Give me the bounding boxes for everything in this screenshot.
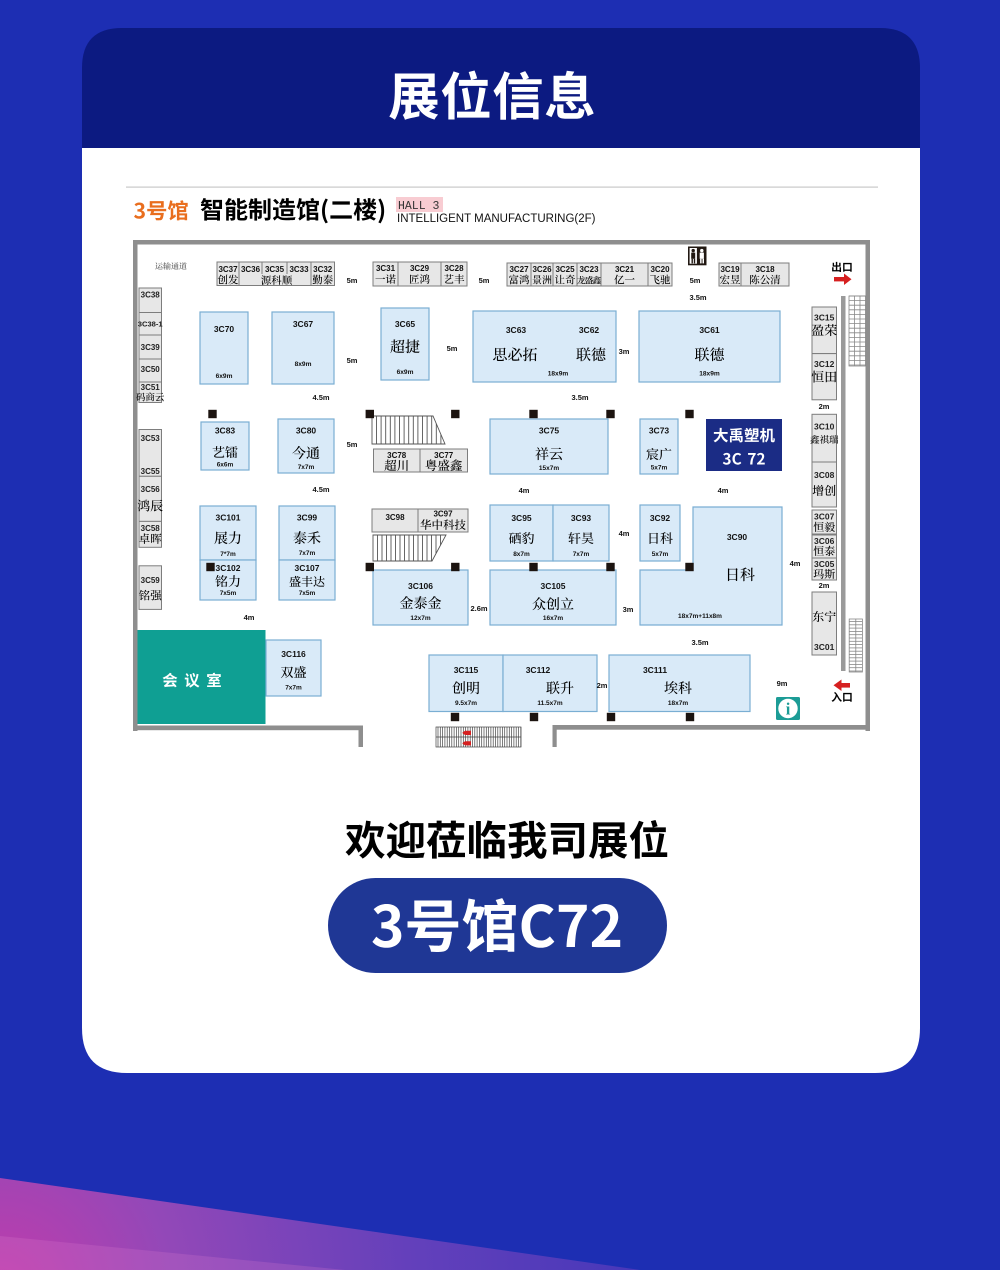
svg-text:3C05: 3C05 (814, 559, 835, 569)
svg-text:5m: 5m (347, 356, 358, 365)
svg-text:3C98: 3C98 (385, 513, 405, 522)
svg-text:3C65: 3C65 (395, 319, 416, 329)
svg-text:3C38: 3C38 (141, 291, 161, 300)
svg-text:3m: 3m (623, 605, 634, 614)
svg-text:4m: 4m (718, 486, 729, 495)
svg-text:3C78: 3C78 (387, 451, 407, 460)
svg-text:6x9m: 6x9m (397, 369, 414, 376)
svg-text:2m: 2m (597, 681, 608, 690)
svg-text:4m: 4m (790, 559, 801, 568)
svg-text:12x7m: 12x7m (410, 615, 430, 622)
svg-text:3C10: 3C10 (814, 422, 835, 432)
svg-text:3C93: 3C93 (571, 513, 592, 523)
svg-text:3C38-1: 3C38-1 (138, 320, 164, 329)
svg-text:4.5m: 4.5m (312, 393, 329, 402)
svg-text:3C28: 3C28 (444, 264, 464, 273)
svg-text:3C56: 3C56 (141, 485, 161, 494)
svg-text:15x7m: 15x7m (539, 465, 559, 472)
svg-text:3C35: 3C35 (265, 265, 285, 274)
svg-text:4m: 4m (244, 613, 255, 622)
svg-text:3m: 3m (619, 347, 630, 356)
svg-text:HALL 3: HALL 3 (398, 200, 440, 213)
svg-text:5m: 5m (690, 276, 701, 285)
svg-text:3C23: 3C23 (579, 265, 599, 274)
svg-text:11.5x7m: 11.5x7m (537, 700, 563, 707)
svg-text:5m: 5m (347, 440, 358, 449)
svg-text:3C107: 3C107 (294, 563, 319, 573)
svg-text:7x7m: 7x7m (573, 551, 590, 558)
svg-text:3C101: 3C101 (215, 513, 240, 523)
svg-text:3C111: 3C111 (643, 665, 667, 675)
svg-text:INTELLIGENT MANUFACTURING(2F): INTELLIGENT MANUFACTURING(2F) (397, 213, 596, 225)
svg-text:3C15: 3C15 (814, 313, 835, 323)
svg-text:3C92: 3C92 (650, 513, 671, 523)
svg-text:5x7m: 5x7m (651, 465, 668, 472)
svg-text:16x7m: 16x7m (543, 615, 563, 622)
svg-text:5m: 5m (447, 344, 458, 353)
svg-text:7x7m: 7x7m (299, 550, 316, 557)
svg-text:3C31: 3C31 (376, 264, 396, 273)
svg-text:3C18: 3C18 (755, 265, 775, 274)
svg-text:3C21: 3C21 (615, 265, 635, 274)
svg-text:3C63: 3C63 (506, 325, 527, 335)
svg-text:6x6m: 6x6m (217, 462, 234, 469)
svg-text:3C29: 3C29 (410, 264, 430, 273)
svg-text:2m: 2m (819, 402, 830, 411)
svg-text:3C51: 3C51 (141, 383, 161, 392)
svg-text:3C95: 3C95 (511, 513, 532, 523)
svg-text:3C50: 3C50 (141, 365, 161, 374)
svg-text:3C90: 3C90 (727, 532, 748, 542)
svg-text:6x9m: 6x9m (216, 373, 233, 380)
svg-text:3C105: 3C105 (540, 581, 565, 591)
svg-text:3C97: 3C97 (433, 510, 453, 519)
svg-text:3C08: 3C08 (814, 470, 835, 480)
svg-text:3C77: 3C77 (434, 451, 454, 460)
svg-text:7*7m: 7*7m (220, 551, 236, 558)
svg-text:3C26: 3C26 (532, 265, 552, 274)
svg-text:3C58: 3C58 (141, 524, 161, 533)
svg-text:3C73: 3C73 (649, 426, 670, 436)
svg-text:3C115: 3C115 (454, 665, 479, 675)
svg-text:3C20: 3C20 (650, 265, 670, 274)
svg-text:7x5m: 7x5m (299, 590, 316, 597)
svg-text:2m: 2m (819, 581, 830, 590)
svg-text:3C39: 3C39 (141, 343, 161, 352)
svg-text:3.5m: 3.5m (571, 393, 588, 402)
svg-text:8x7m: 8x7m (513, 551, 530, 558)
svg-text:3C53: 3C53 (141, 434, 161, 443)
svg-text:3C12: 3C12 (814, 359, 835, 369)
svg-text:18x9m: 18x9m (699, 371, 720, 378)
svg-text:2.6m: 2.6m (470, 604, 487, 613)
svg-text:3C70: 3C70 (214, 324, 235, 334)
svg-text:3C116: 3C116 (281, 649, 306, 659)
svg-text:8x9m: 8x9m (295, 361, 312, 368)
svg-text:3C32: 3C32 (313, 265, 333, 274)
svg-text:3C19: 3C19 (720, 265, 740, 274)
svg-text:3C83: 3C83 (215, 426, 236, 436)
svg-text:9.5x7m: 9.5x7m (455, 700, 477, 707)
svg-text:7x7m: 7x7m (298, 464, 315, 471)
svg-text:3C61: 3C61 (699, 325, 720, 335)
svg-text:4m: 4m (619, 529, 630, 538)
svg-text:18x9m: 18x9m (548, 371, 569, 378)
svg-text:5m: 5m (347, 276, 358, 285)
svg-text:7x7m: 7x7m (285, 685, 302, 692)
svg-text:3C27: 3C27 (509, 265, 529, 274)
svg-text:9m: 9m (777, 679, 788, 688)
svg-text:3C106: 3C106 (408, 581, 433, 591)
svg-text:3C06: 3C06 (814, 536, 835, 546)
svg-text:3.5m: 3.5m (689, 293, 706, 302)
svg-text:7x5m: 7x5m (220, 590, 237, 597)
svg-text:3C59: 3C59 (141, 576, 161, 585)
svg-text:18x7m: 18x7m (668, 700, 688, 707)
svg-text:3C62: 3C62 (579, 325, 600, 335)
svg-text:18x7m+11x8m: 18x7m+11x8m (678, 613, 722, 620)
svg-text:3C75: 3C75 (539, 426, 560, 436)
svg-text:3C99: 3C99 (297, 513, 318, 523)
svg-text:4m: 4m (519, 486, 530, 495)
svg-text:3C112: 3C112 (526, 665, 551, 675)
svg-text:3C67: 3C67 (293, 319, 314, 329)
svg-text:3C37: 3C37 (218, 265, 238, 274)
svg-text:i: i (786, 700, 791, 719)
svg-text:4.5m: 4.5m (312, 485, 329, 494)
svg-text:3C36: 3C36 (241, 265, 261, 274)
svg-text:3C25: 3C25 (555, 265, 575, 274)
svg-text:3.5m: 3.5m (691, 638, 708, 647)
svg-text:3C80: 3C80 (296, 426, 317, 436)
svg-text:3C01: 3C01 (814, 642, 835, 652)
svg-text:5x7m: 5x7m (652, 551, 669, 558)
svg-text:3C07: 3C07 (814, 512, 835, 522)
svg-text:3C102: 3C102 (215, 563, 240, 573)
svg-text:3C33: 3C33 (289, 265, 309, 274)
svg-text:5m: 5m (479, 276, 490, 285)
svg-text:3C55: 3C55 (141, 467, 161, 476)
